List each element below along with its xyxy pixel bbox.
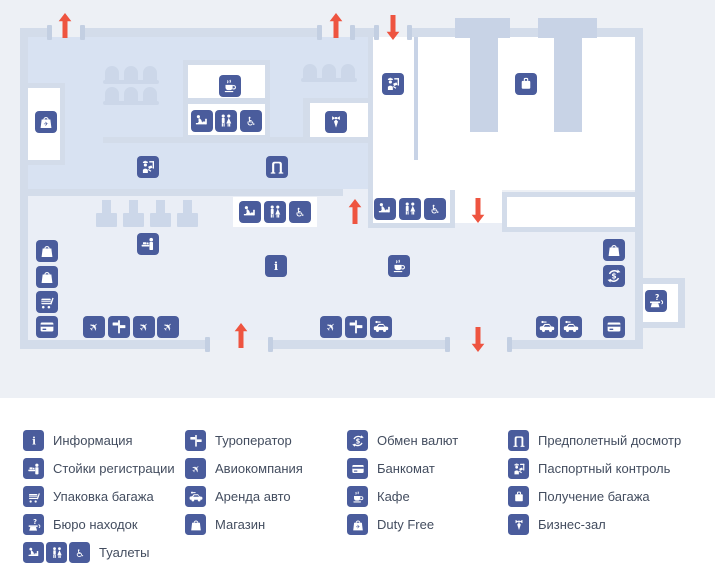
legend-label: Duty Free (377, 517, 434, 532)
legend-label: Авиокомпания (215, 461, 303, 476)
legend-item-icons (23, 514, 44, 535)
legend-item-icons (508, 514, 529, 535)
legend-item: Упаковка багажа (23, 486, 175, 507)
car-icon (560, 316, 582, 338)
legend-item: Банкомат (347, 458, 458, 479)
wc-icon (215, 110, 237, 132)
legend-item-icons (23, 430, 44, 451)
legend-label: Получение багажа (538, 489, 650, 504)
registration-icon (137, 233, 159, 255)
direction-arrow-up-icon (58, 13, 72, 38)
legend-label: Упаковка багажа (53, 489, 154, 504)
atm-icon (603, 316, 625, 338)
cafe-icon (388, 255, 410, 277)
direction-arrow-down-icon (471, 198, 485, 223)
tourop-icon (345, 316, 367, 338)
tourop-icon (185, 430, 206, 451)
baby-icon (239, 201, 261, 223)
wc-icon (46, 542, 67, 563)
passport-icon (382, 73, 404, 95)
car-icon (185, 486, 206, 507)
wc-icon (264, 201, 286, 223)
legend-item: Предполетный досмотр (508, 430, 681, 451)
dutyfree-icon (35, 111, 57, 133)
baby-icon (374, 198, 396, 220)
direction-arrow-down-icon (471, 327, 485, 352)
direction-arrow-up-icon (329, 13, 343, 38)
legend-item: Стойки регистрации (23, 458, 175, 479)
plane-icon (320, 316, 342, 338)
legend-label: Аренда авто (215, 489, 291, 504)
lostfound-icon (645, 290, 667, 312)
legend-item: Duty Free (347, 514, 458, 535)
legend-item-icons (347, 514, 368, 535)
wheelchair-icon (69, 542, 90, 563)
legend-item: Туроператор (185, 430, 303, 451)
legend-item-icons (185, 458, 206, 479)
security-icon (508, 430, 529, 451)
wheelchair-icon (289, 201, 311, 223)
packing-icon (36, 291, 58, 313)
terminal-floor-plan (0, 0, 715, 398)
packing-icon (23, 486, 44, 507)
direction-arrow-down-icon (386, 15, 400, 40)
shop-icon (36, 266, 58, 288)
legend-item: Бюро находок (23, 514, 175, 535)
baggage-icon (515, 73, 537, 95)
legend-item-icons (23, 458, 44, 479)
legend: ИнформацияСтойки регистрацииУпаковка баг… (0, 418, 715, 574)
plane-icon (83, 316, 105, 338)
legend-item: Обмен валют (347, 430, 458, 451)
legend-item-icons (185, 430, 206, 451)
legend-item-icons (347, 430, 368, 451)
legend-label: Стойки регистрации (53, 461, 175, 476)
tourop-icon (108, 316, 130, 338)
legend-column: ТуроператорАвиокомпанияАренда автоМагази… (185, 430, 303, 542)
legend-label: Обмен валют (377, 433, 458, 448)
legend-column: Обмен валютБанкоматКафеDuty Free (347, 430, 458, 542)
plane-icon (185, 458, 206, 479)
info-icon (265, 255, 287, 277)
wheelchair-icon (424, 198, 446, 220)
legend-label: Бюро находок (53, 517, 138, 532)
legend-item-icons (23, 542, 90, 563)
passport-icon (508, 458, 529, 479)
legend-item: Авиокомпания (185, 458, 303, 479)
business-icon (508, 514, 529, 535)
legend-item: Получение багажа (508, 486, 681, 507)
registration-icon (23, 458, 44, 479)
wheelchair-icon (240, 110, 262, 132)
legend-label: Бизнес-зал (538, 517, 606, 532)
legend-column: ИнформацияСтойки регистрацииУпаковка баг… (23, 430, 175, 570)
legend-item-icons (347, 486, 368, 507)
cafe-icon (219, 75, 241, 97)
legend-item-icons (508, 486, 529, 507)
legend-item: Туалеты (23, 542, 175, 563)
direction-arrow-up-icon (234, 323, 248, 348)
legend-item-icons (23, 486, 44, 507)
legend-column: Предполетный досмотрПаспортный контрольП… (508, 430, 681, 542)
business-icon (325, 111, 347, 133)
shop-icon (36, 240, 58, 262)
wc-icon (399, 198, 421, 220)
car-icon (370, 316, 392, 338)
info-icon (23, 430, 44, 451)
exchange-icon (603, 265, 625, 287)
atm-icon (347, 458, 368, 479)
passport-icon (137, 156, 159, 178)
car-icon (536, 316, 558, 338)
cafe-icon (347, 486, 368, 507)
legend-item: Информация (23, 430, 175, 451)
legend-item-icons (508, 458, 529, 479)
legend-item: Аренда авто (185, 486, 303, 507)
legend-label: Кафе (377, 489, 410, 504)
atm-icon (36, 316, 58, 338)
legend-item: Паспортный контроль (508, 458, 681, 479)
legend-label: Паспортный контроль (538, 461, 670, 476)
legend-item: Кафе (347, 486, 458, 507)
legend-label: Туалеты (99, 545, 149, 560)
legend-label: Туроператор (215, 433, 292, 448)
direction-arrow-up-icon (348, 199, 362, 224)
shop-icon (603, 239, 625, 261)
legend-item: Магазин (185, 514, 303, 535)
airport-terminal-map-page: ИнформацияСтойки регистрацииУпаковка баг… (0, 0, 715, 574)
legend-label: Информация (53, 433, 133, 448)
legend-item-icons (185, 514, 206, 535)
legend-label: Магазин (215, 517, 265, 532)
legend-label: Предполетный досмотр (538, 433, 681, 448)
baby-icon (191, 110, 213, 132)
legend-item-icons (347, 458, 368, 479)
plan-icons-layer (0, 0, 715, 398)
legend-item-icons (185, 486, 206, 507)
legend-item: Бизнес-зал (508, 514, 681, 535)
baggage-icon (508, 486, 529, 507)
exchange-icon (347, 430, 368, 451)
security-icon (266, 156, 288, 178)
dutyfree-icon (347, 514, 368, 535)
legend-item-icons (508, 430, 529, 451)
legend-label: Банкомат (377, 461, 435, 476)
shop-icon (185, 514, 206, 535)
plane-icon (157, 316, 179, 338)
baby-icon (23, 542, 44, 563)
plane-icon (133, 316, 155, 338)
lostfound-icon (23, 514, 44, 535)
